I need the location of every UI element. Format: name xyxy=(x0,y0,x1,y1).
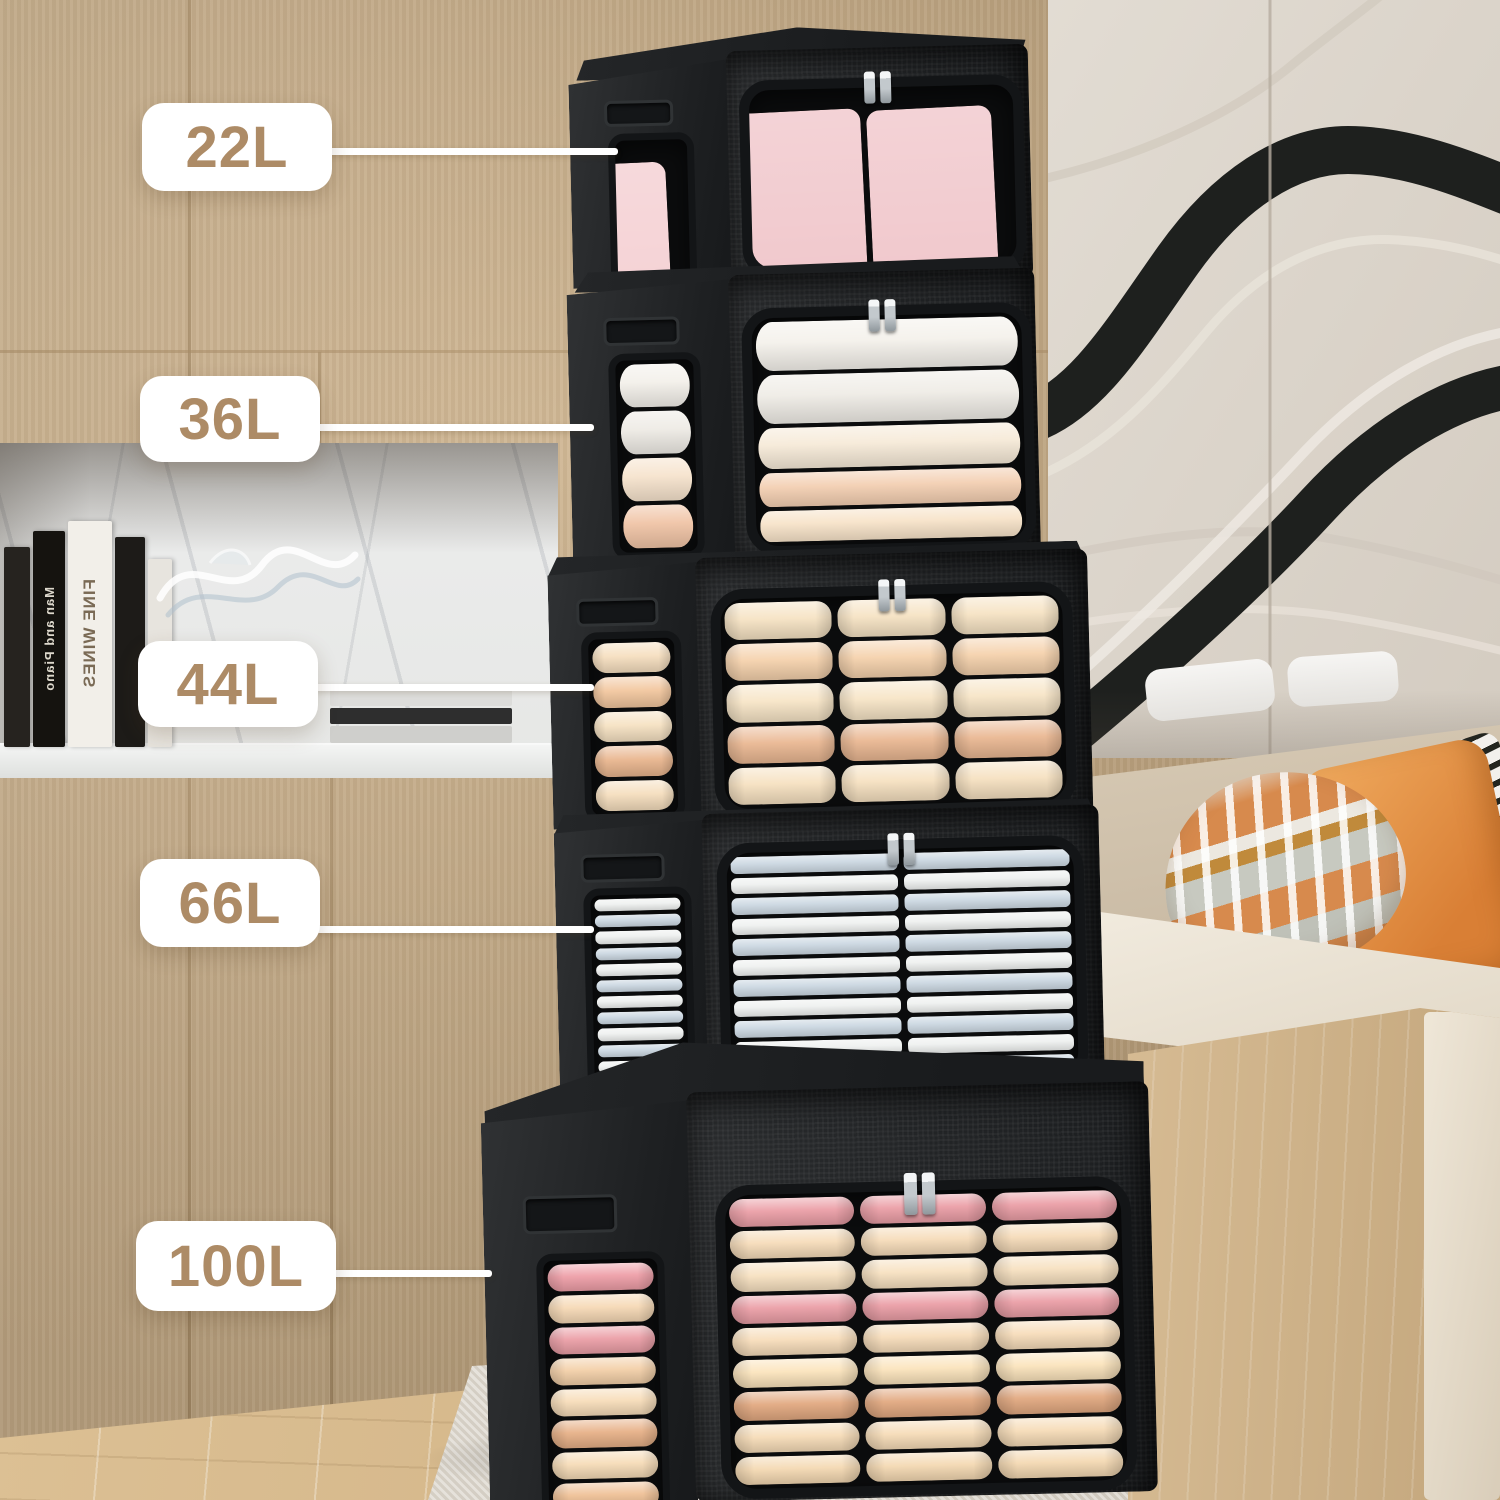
leader-line-100l xyxy=(330,1270,492,1277)
box-handle xyxy=(604,99,674,127)
box-front-window xyxy=(738,74,1027,279)
folded-clothes xyxy=(596,978,682,992)
folded-clothes xyxy=(838,639,946,679)
cloth-row xyxy=(551,1418,658,1448)
box-side-window xyxy=(536,1251,671,1500)
box-side-panel xyxy=(547,562,703,830)
folded-clothes xyxy=(862,1258,988,1289)
folded-clothes xyxy=(757,369,1020,424)
folded-clothes xyxy=(865,1386,991,1417)
folded-clothes xyxy=(735,1454,861,1485)
cloth-row xyxy=(598,1027,684,1041)
folded-clothes xyxy=(733,1357,859,1388)
storage-box-100l xyxy=(479,1031,1158,1500)
leader-line-36l xyxy=(316,424,594,431)
cloth-row xyxy=(595,745,674,777)
box-side-window xyxy=(608,352,705,560)
folded-clothes xyxy=(866,1419,992,1450)
storage-box-44l xyxy=(547,540,1094,829)
folded-clothes xyxy=(726,683,834,723)
folded-clothes xyxy=(904,911,1071,932)
folded-clothes xyxy=(550,1387,657,1417)
folded-clothes xyxy=(725,642,833,682)
cloth-row xyxy=(595,914,681,928)
folded-clothes xyxy=(597,994,683,1008)
cloth-row xyxy=(733,1351,1122,1389)
zipper-pull-icon xyxy=(904,1173,918,1215)
folded-clothes xyxy=(734,997,901,1018)
folded-clothes xyxy=(594,897,680,911)
zipper-pulls xyxy=(868,299,896,332)
folded-clothes xyxy=(730,853,897,874)
folded-clothes xyxy=(993,1254,1119,1285)
cloth-row xyxy=(622,457,693,502)
folded-clothes xyxy=(597,1011,683,1025)
capacity-label-44l: 44L xyxy=(138,641,318,727)
folded-clothes xyxy=(595,930,681,944)
folded-clothes xyxy=(732,935,899,956)
folded-clothes xyxy=(907,1013,1074,1034)
folded-clothes xyxy=(905,952,1072,973)
zipper-pull-icon xyxy=(887,833,899,865)
folded-clothes xyxy=(905,931,1072,952)
folded-clothes xyxy=(619,363,690,408)
folded-clothes xyxy=(598,1027,684,1041)
folded-clothes xyxy=(998,1448,1124,1479)
folded-clothes xyxy=(595,779,674,811)
folded-clothes xyxy=(730,1229,856,1260)
cloth-row xyxy=(725,636,1060,681)
zipper-pull-icon xyxy=(903,833,915,865)
box-front-panel xyxy=(726,44,1034,285)
folded-clothes xyxy=(724,601,832,641)
folded-clothes xyxy=(951,595,1059,635)
folded-clothes xyxy=(592,642,671,674)
box-front-window xyxy=(741,302,1037,557)
cloth-row xyxy=(593,676,672,708)
zipper-pulls xyxy=(878,579,906,612)
folded-clothes xyxy=(866,1451,992,1482)
folded-clothes xyxy=(623,504,694,549)
storage-box-36l xyxy=(566,256,1043,567)
cloth-row xyxy=(730,1222,1119,1260)
folded-clothes xyxy=(734,1017,901,1038)
folded-clothes xyxy=(864,1354,990,1385)
folded-clothes xyxy=(863,1322,989,1353)
folded-clothes xyxy=(595,914,681,928)
folded-clothes xyxy=(839,680,947,720)
box-front-panel xyxy=(728,268,1041,563)
leader-line-66l xyxy=(316,926,594,933)
folded-clothes xyxy=(731,894,898,915)
folded-clothes xyxy=(550,1356,657,1386)
cloth-row xyxy=(731,1287,1120,1325)
folded-clothes xyxy=(954,719,1062,759)
folded-clothes xyxy=(997,1415,1123,1446)
cloth-row xyxy=(727,719,1062,764)
folded-clothes xyxy=(840,721,948,761)
cloth-row xyxy=(553,1481,660,1500)
capacity-label-22l: 22L xyxy=(142,103,332,191)
box-handle xyxy=(576,597,659,627)
cloth-row xyxy=(619,363,690,408)
cloth-row xyxy=(597,994,683,1008)
cloth-row xyxy=(596,962,682,976)
folded-clothes xyxy=(996,1383,1122,1414)
folded-clothes xyxy=(728,765,836,805)
folded-clothes xyxy=(734,1422,860,1453)
folded-clothes xyxy=(732,915,899,936)
folded-clothes xyxy=(732,1325,858,1356)
folded-clothes xyxy=(548,1293,655,1323)
cloth-row xyxy=(623,504,694,549)
cloth-row xyxy=(734,1415,1123,1453)
product-photo-scene: Man and Piano FINE WINES xyxy=(0,0,1500,1500)
box-handle xyxy=(603,316,680,346)
box-front-window xyxy=(714,1176,1138,1500)
box-handle xyxy=(580,853,665,883)
box-side-panel xyxy=(480,1100,698,1500)
folded-clothes xyxy=(841,763,949,803)
folded-clothes xyxy=(904,890,1071,911)
folded-clothes xyxy=(622,457,693,502)
folded-clothes xyxy=(952,636,1060,676)
cloth-row xyxy=(728,760,1063,805)
folded-clothes xyxy=(547,1262,654,1292)
folded-clothes xyxy=(733,956,900,977)
cloth-row xyxy=(596,978,682,992)
cloth-row xyxy=(550,1387,657,1417)
folded-clothes xyxy=(733,1390,859,1421)
box-handle xyxy=(523,1194,618,1234)
folded-clothes xyxy=(994,1319,1120,1350)
cloth-row xyxy=(730,1254,1119,1292)
storage-box-22l xyxy=(567,22,1033,289)
folded-clothes xyxy=(861,1225,987,1256)
folded-clothes xyxy=(759,467,1022,508)
folded-clothes xyxy=(906,972,1073,993)
folded-clothes xyxy=(729,1196,855,1227)
leader-line-22l xyxy=(328,148,618,155)
folded-clothes xyxy=(730,1261,856,1292)
folded-clothes xyxy=(549,1325,656,1355)
leader-line-44l xyxy=(314,684,594,691)
folded-clothes xyxy=(866,105,1027,279)
cloth-row xyxy=(758,422,1021,469)
cloth-row xyxy=(594,710,673,742)
folded-clothes xyxy=(758,422,1021,469)
cloth-row xyxy=(548,1293,655,1323)
folded-clothes xyxy=(991,1190,1117,1221)
capacity-label-66l: 66L xyxy=(140,859,320,947)
capacity-label-36l: 36L xyxy=(140,376,320,462)
folded-clothes xyxy=(903,870,1070,891)
cloth-row xyxy=(595,779,674,811)
cloth-row xyxy=(594,897,680,911)
cloth-row xyxy=(596,946,682,960)
cloth-row xyxy=(595,930,681,944)
box-front-window xyxy=(710,581,1078,820)
box-front-panel xyxy=(686,1081,1158,1500)
box-front-panel xyxy=(695,548,1093,825)
zipper-pull-icon xyxy=(894,579,906,611)
folded-clothes xyxy=(596,962,682,976)
folded-clothes xyxy=(593,676,672,708)
folded-clothes xyxy=(731,874,898,895)
zipper-pull-icon xyxy=(864,71,876,103)
cloth-row xyxy=(735,1448,1124,1486)
capacity-label-100l: 100L xyxy=(136,1221,336,1311)
zipper-pull-icon xyxy=(880,71,892,103)
folded-clothes xyxy=(620,410,691,455)
cloth-row xyxy=(760,505,1023,542)
zipper-pull-icon xyxy=(868,299,880,331)
zipper-pulls xyxy=(904,1172,936,1215)
folded-clothes xyxy=(955,760,1063,800)
cloth-row xyxy=(597,1011,683,1025)
cloth-row xyxy=(592,642,671,674)
folded-clothes xyxy=(992,1222,1118,1253)
folded-clothes xyxy=(596,946,682,960)
folded-clothes xyxy=(553,1481,660,1500)
folded-clothes xyxy=(760,505,1023,542)
cloth-row xyxy=(732,1319,1121,1357)
folded-clothes xyxy=(552,1450,659,1480)
zipper-pulls xyxy=(864,71,892,104)
cloth-row xyxy=(733,1383,1122,1421)
cloth-row xyxy=(759,467,1022,508)
zipper-pull-icon xyxy=(878,579,890,611)
folded-clothes xyxy=(995,1351,1121,1382)
box-side-panel xyxy=(568,59,733,289)
cloth-row xyxy=(550,1356,657,1386)
zipper-pulls xyxy=(887,833,915,866)
folded-clothes xyxy=(731,1293,857,1324)
folded-clothes xyxy=(862,1290,988,1321)
folded-clothes xyxy=(594,710,673,742)
folded-clothes xyxy=(953,678,1061,718)
cloth-row xyxy=(726,678,1061,723)
folded-clothes xyxy=(906,993,1073,1014)
cloth-row xyxy=(547,1262,654,1292)
zipper-pull-icon xyxy=(922,1172,936,1214)
folded-clothes xyxy=(733,976,900,997)
folded-clothes xyxy=(727,724,835,764)
cloth-row xyxy=(552,1450,659,1480)
folded-clothes xyxy=(994,1287,1120,1318)
folded-clothes xyxy=(595,745,674,777)
cloth-row xyxy=(753,88,1027,279)
zipper-pull-icon xyxy=(884,299,896,331)
cloth-row xyxy=(757,369,1020,424)
cloth-row xyxy=(549,1325,656,1355)
box-side-window xyxy=(581,630,686,822)
folded-clothes xyxy=(903,849,1070,870)
folded-clothes xyxy=(551,1418,658,1448)
cloth-row xyxy=(620,410,691,455)
